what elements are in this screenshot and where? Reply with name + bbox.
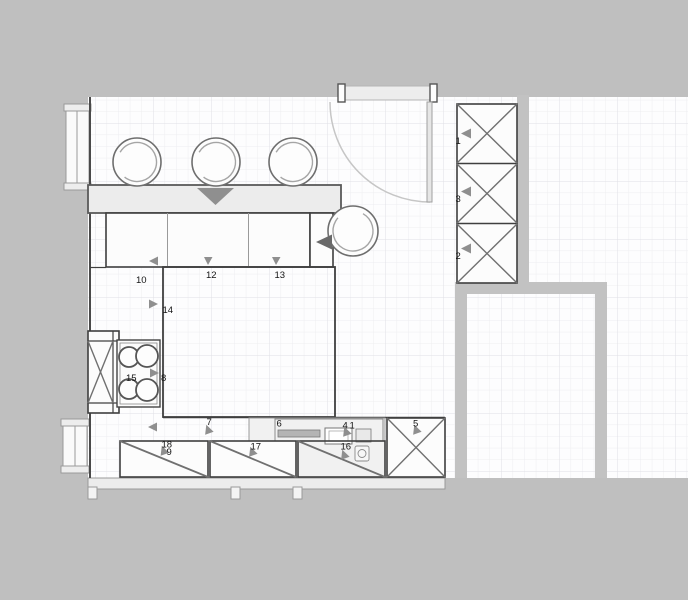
item-label: 5 [413,419,418,430]
item-label: 13 [275,270,286,281]
burner [136,345,158,367]
item-label: 7 [207,417,212,428]
item-label: 6 [277,419,282,430]
bar-stools[interactable] [110,135,319,188]
item-label: 1 [456,136,461,147]
wall-cabinet-run[interactable] [90,213,333,268]
item-label: 10 [136,275,147,286]
tall-cabinet-left[interactable] [88,331,119,413]
door-leaf [427,102,432,202]
item-label: 3 [456,194,461,205]
item-label: 16 [341,442,352,453]
floor-plan-viewport: 1 3 2 10 12 13 14 15 8 7 6 4 1 5 18 9 17… [0,0,688,600]
item-label: 14 [163,305,174,316]
item-label: 2 [456,251,461,262]
faucet-bar [278,430,320,437]
item-label: 15 [126,373,137,384]
item-label: 4 [343,421,348,432]
kitchen-floor-plan: 1 3 2 10 12 13 14 15 8 7 6 4 1 5 18 9 17… [0,0,688,600]
item-label: 8 [161,373,166,384]
item-label: 12 [206,270,217,281]
item-label: 17 [251,442,262,453]
window-bottom-left[interactable] [61,419,89,473]
item-label: 1 [350,421,355,432]
item-label: 9 [167,447,172,458]
window-top-left[interactable] [64,104,91,190]
burner [136,379,158,401]
